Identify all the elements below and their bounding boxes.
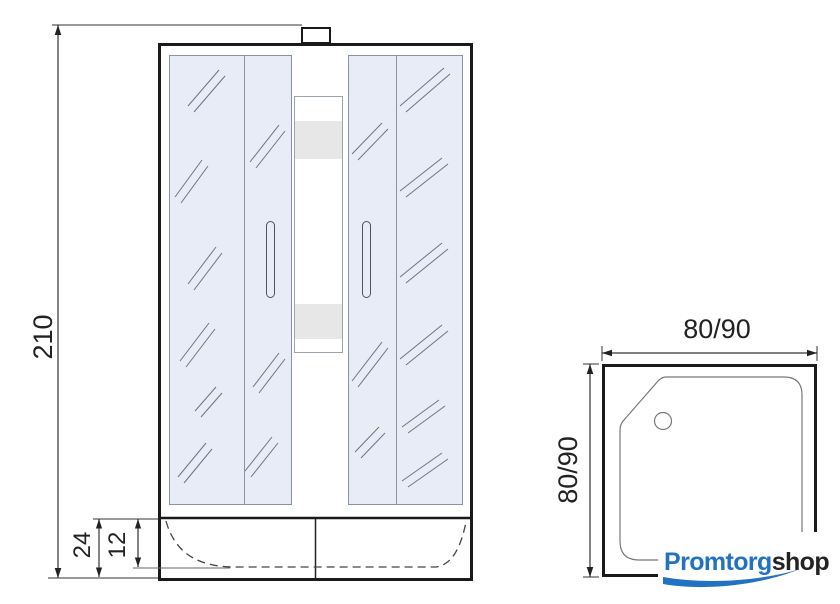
glass-divider-left [244, 56, 245, 504]
height-dimension-label: 210 [30, 297, 60, 377]
tray-depth-dimension-label: 12 [106, 525, 132, 565]
dimension-width-80-90 [602, 346, 817, 361]
door-handle-right [362, 221, 371, 298]
column-band-top [295, 121, 342, 159]
width-dimension-label: 80/90 [667, 316, 767, 346]
promtorgshop-logo: Promtorgshop [658, 532, 840, 604]
logo-swoosh-icon [658, 558, 808, 598]
roof-cap [301, 27, 331, 44]
dimension-depth-80-90 [583, 364, 599, 577]
tray-height-dimension-label: 24 [71, 525, 97, 565]
shower-cabin-dimension-diagram: { "diagram": { "front_view": { "height":… [0, 0, 840, 604]
center-column [294, 96, 343, 353]
glass-divider-right [396, 56, 397, 504]
depth-dimension-label: 80/90 [555, 420, 585, 520]
door-handle-left [266, 221, 275, 298]
column-band-bottom [295, 304, 342, 339]
